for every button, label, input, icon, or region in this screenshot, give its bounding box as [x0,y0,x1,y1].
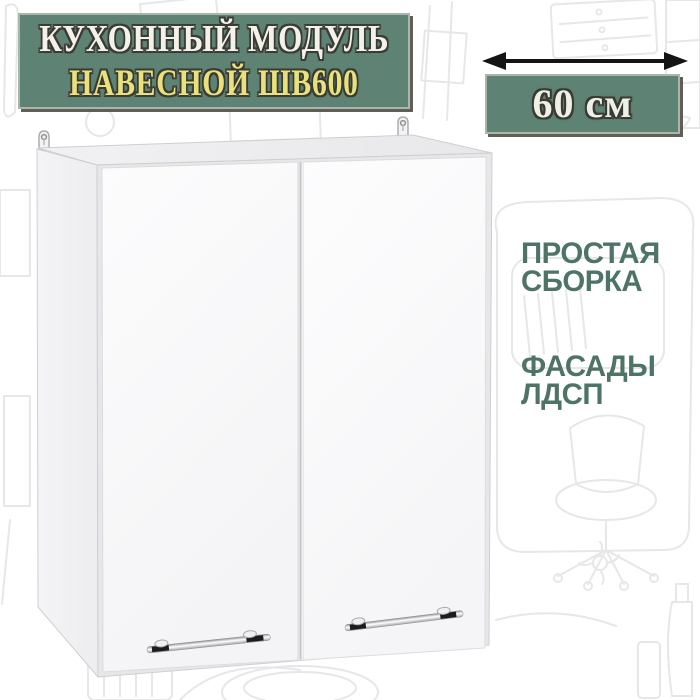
right-hanger-bracket-icon [398,117,408,136]
dimension-label: 60 см [533,84,633,124]
feature-line: СБОРКА [521,268,660,296]
product-card: КУХОННЫЙ МОДУЛЬ НАВЕСНОЙ ШВ600 60 см ПРО… [0,0,700,700]
feature-line: ФАСАДЫ [521,353,655,381]
feature-line: ЛДСП [521,381,655,409]
arrow-head-left [482,52,506,70]
left-hanger-bracket-icon [39,131,49,150]
title-line-1: КУХОННЫЙ МОДУЛЬ [39,20,389,58]
feature-line: ПРОСТАЯ [521,240,660,268]
dimension-badge: 60 см [485,74,680,134]
cabinet-left-door [102,162,298,672]
title-badge: КУХОННЫЙ МОДУЛЬ НАВЕСНОЙ ШВ600 [18,13,410,109]
feature-easy-assembly: ПРОСТАЯ СБОРКА [521,240,660,296]
arrow-head-right [664,52,688,70]
title-line-2: НАВЕСНОЙ ШВ600 [69,65,359,102]
cabinet-side-panel [37,149,98,677]
width-arrow-icon [480,46,690,76]
feature-ldsp-fronts: ФАСАДЫ ЛДСП [521,353,655,409]
cabinet-right-door [303,157,486,660]
